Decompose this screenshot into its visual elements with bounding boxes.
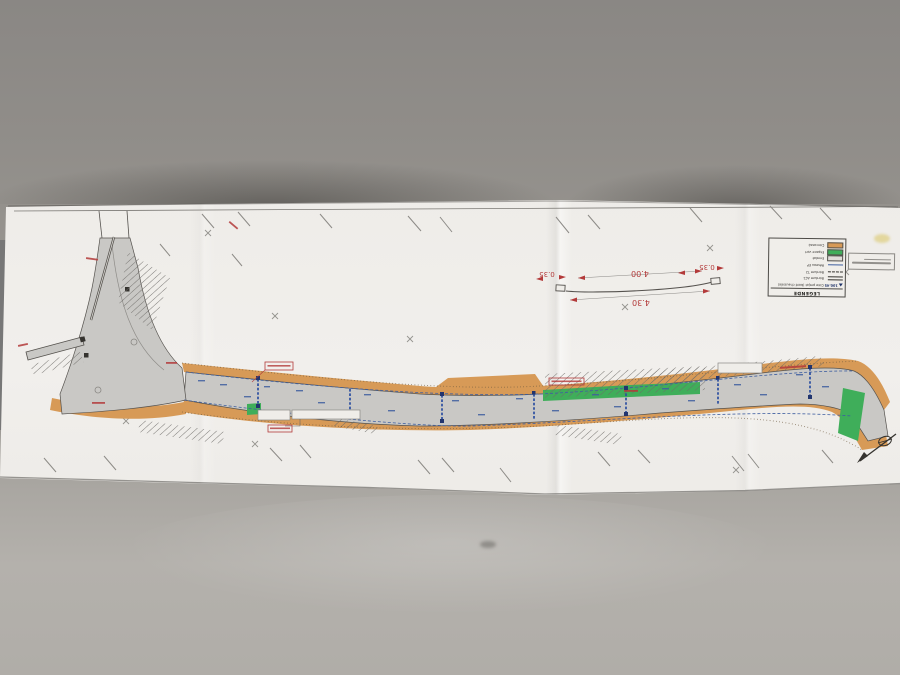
plan-drawing: 4.00 4.30 0.35 0.35 [0,0,900,675]
hatch-area [138,420,225,444]
blue-line-icon [828,265,843,266]
plot-rectangle [258,410,290,420]
curb-left [556,285,565,291]
legend-title: LEGENDE [771,287,843,295]
drawing-frame-line [14,207,896,212]
illegible-text-line [852,262,891,264]
illegible-text-line [864,259,891,261]
dimension-left-curb: 0.35 [539,270,555,278]
legend-row: Espace vert [771,248,843,256]
plot-rectangle [718,363,762,373]
sidewalk-bulge-top [428,374,546,396]
dimension-right-curb: 0.35 [699,263,715,271]
paper-top-edge [8,201,898,207]
hatch-area [555,425,622,445]
swatch-espace-vert-icon [827,249,843,255]
plot-rectangle [292,410,360,419]
legend-row: Réseau EP [771,261,843,269]
swatch-concasse-icon [827,242,843,248]
title-label-box [848,253,895,271]
legend-box: LEGENDE 100.45 Cote projet (bord chaussé… [768,237,847,297]
branch-edge [99,211,102,238]
dashed-line-icon [828,271,843,272]
legend-row: 100.45 Cote projet (bord chaussée) [771,281,843,289]
highlight-smudge [874,234,890,243]
monument-square [84,353,89,358]
spot-level-icon [839,284,843,287]
legend-row: Concassé [771,241,843,249]
double-line-icon [828,277,843,281]
paper-bottom-edge [0,477,900,494]
curb-right [711,278,720,285]
legend-row: Enrobé [771,255,843,263]
survey-crosses [123,230,849,473]
swatch-enrobe-icon [827,256,843,262]
legend-row: Bordure AC1 [771,274,843,282]
dimension-inner: 4.00 [631,269,649,278]
branch-edge [127,211,129,238]
intersection-area [60,238,186,414]
cross-section-detail: 4.00 4.30 0.35 0.35 [536,263,724,307]
photo-of-road-plan: 4.00 4.30 0.35 0.35 LEGENDE 100.45 [0,0,900,675]
legend-row: Bordure T2 [771,268,843,276]
dimension-outer: 4.30 [632,298,650,307]
